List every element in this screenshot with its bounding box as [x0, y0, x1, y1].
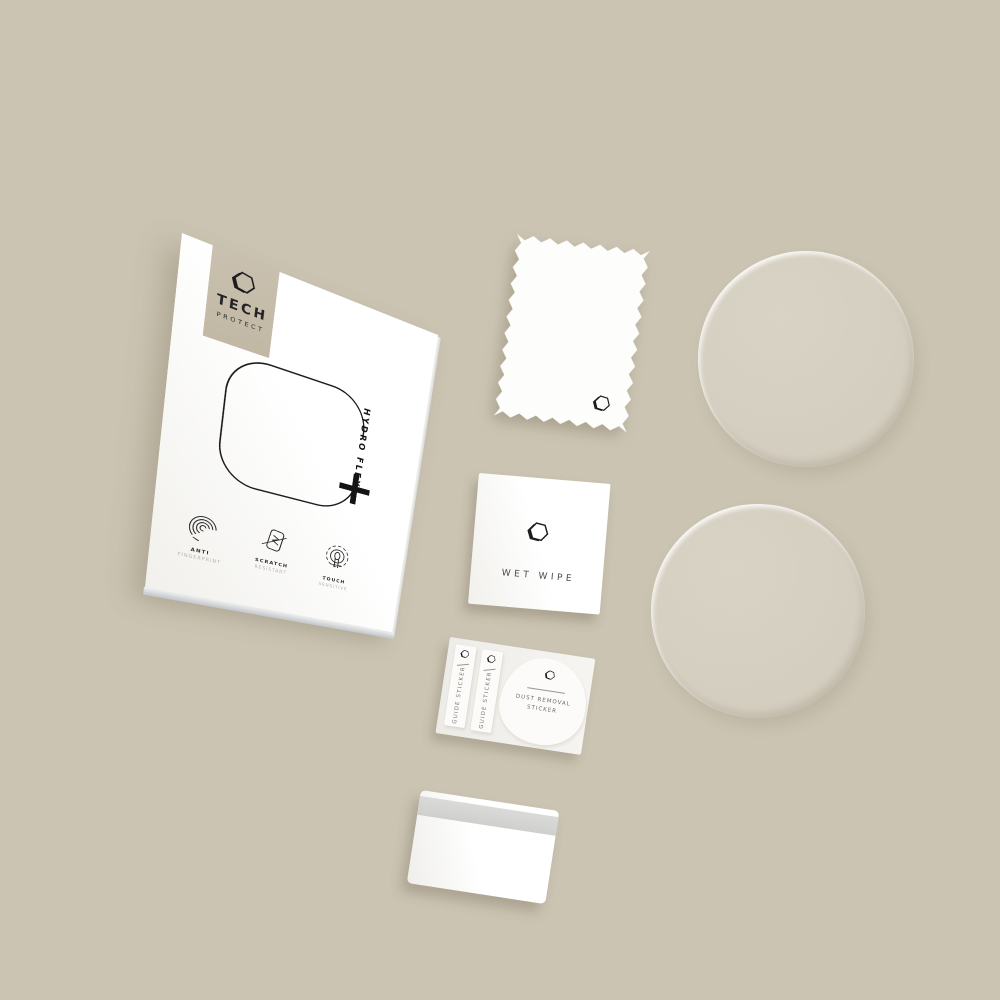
hexagon-3d-icon: [542, 667, 558, 683]
plus-symbol: +: [332, 462, 377, 512]
brand-badge: TECH PROTECT: [203, 245, 280, 358]
wet-wipe-sachet: WET WIPE: [468, 473, 610, 615]
squeegee-card-grip-band: [417, 796, 558, 836]
scratch-resistant-icon: [259, 524, 290, 558]
squeegee-card: [407, 790, 560, 904]
hexagon-3d-icon: [485, 653, 498, 666]
divider: [527, 687, 565, 694]
dust-removal-label: DUST REMOVAL STICKER: [499, 690, 587, 720]
cloth-zigzag-shape: [493, 234, 656, 440]
hexagon-3d-icon: [459, 648, 472, 661]
wet-wipe-label: WET WIPE: [470, 566, 602, 587]
feature-anti-fingerprint: ANTI FINGERPRINT: [163, 504, 239, 569]
screen-protector-disc-bottom: [651, 504, 865, 718]
screen-protector-disc-top: [698, 251, 914, 467]
guide-sticker-label: GUIDE STICKER: [452, 666, 467, 724]
guide-sticker-label: GUIDE STICKER: [478, 671, 493, 729]
hexagon-3d-icon: [590, 391, 615, 416]
dust-removal-sticker: DUST REMOVAL STICKER: [491, 650, 595, 754]
touch-sensitive-icon: [321, 541, 353, 576]
product-box: TECH PROTECT HYDRO FLEX + ANTI FINGERPRI…: [145, 233, 438, 632]
sticker-sheet: GUIDE STICKER GUIDE STICKER DUST REMOVAL…: [435, 637, 595, 755]
fingerprint-icon: [185, 508, 220, 546]
hexagon-3d-icon: [524, 517, 553, 546]
cloth-shape: [494, 234, 650, 433]
product-photo-stage: TECH PROTECT HYDRO FLEX + ANTI FINGERPRI…: [0, 0, 1000, 1000]
microfiber-cloth: [493, 234, 656, 440]
box-front-face: TECH PROTECT HYDRO FLEX + ANTI FINGERPRI…: [145, 233, 438, 632]
feature-touch-sensitive: TOUCH SENSITIVE: [302, 537, 368, 595]
feature-scratch-resistant: SCRATCH RESISTANT: [238, 519, 308, 579]
guide-sticker-right: GUIDE STICKER: [470, 649, 503, 733]
